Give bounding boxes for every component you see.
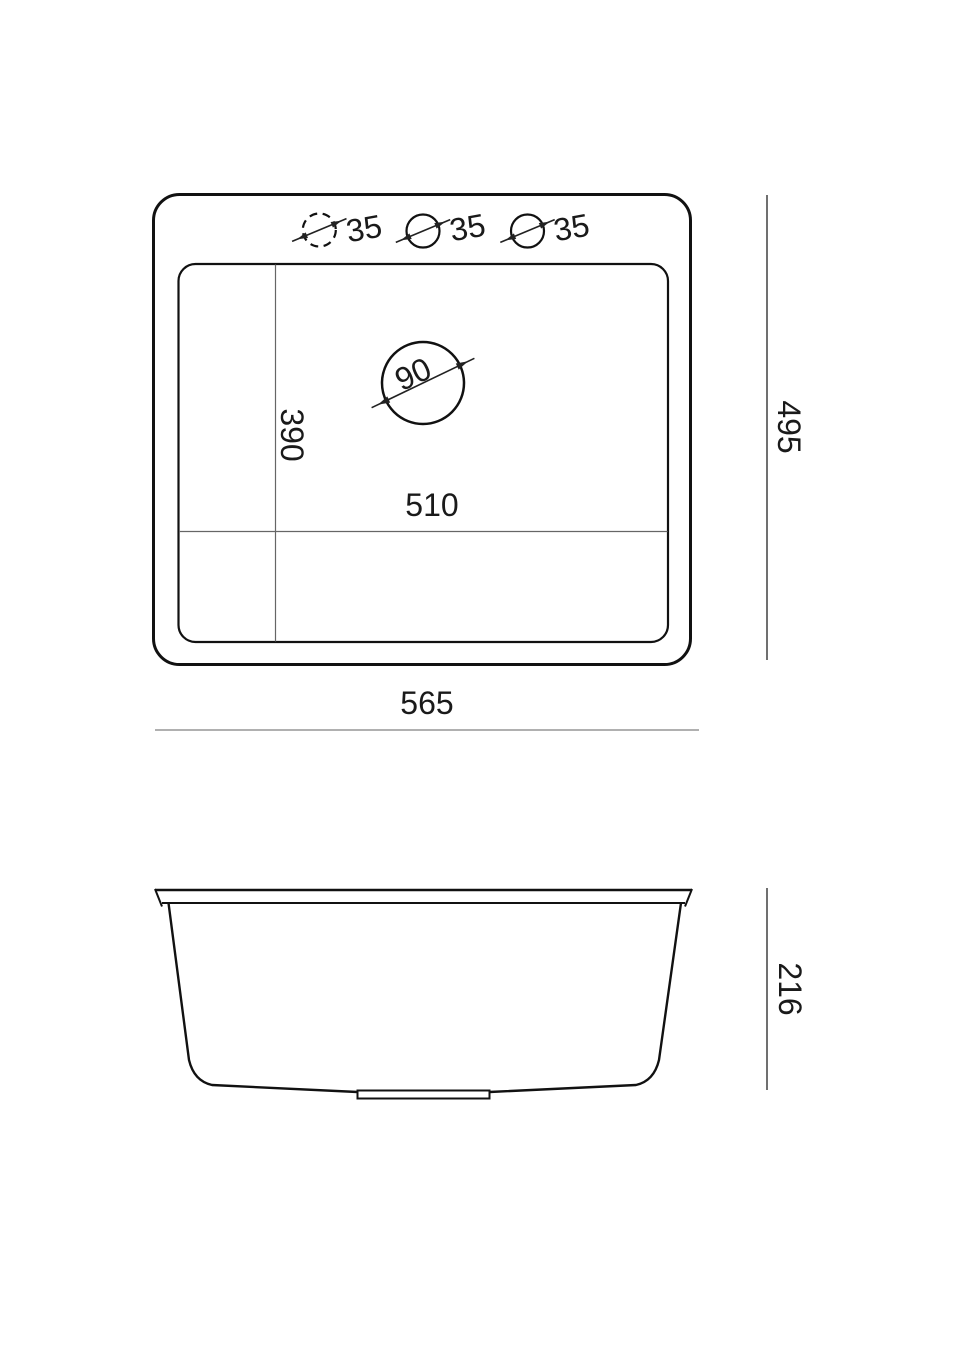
faucet-hole-3-label: 35 — [551, 207, 592, 249]
body-right-wall — [490, 903, 682, 1092]
bowl-depth-label: 390 — [274, 408, 310, 461]
faucet-hole-2-label-group: 35 — [447, 207, 488, 249]
side-view — [155, 889, 692, 1099]
overall-height-label: 216 — [772, 962, 808, 1015]
top-view: 35 35 35 90 390 510 — [154, 195, 691, 665]
bowl-width-label: 510 — [405, 487, 458, 523]
body-left-wall — [169, 903, 358, 1092]
faucet-hole-3-label-group: 35 — [551, 207, 592, 249]
rim-right-cap — [685, 889, 692, 907]
overall-height-label-group: 216 — [772, 962, 808, 1015]
bowl-inner-edge — [179, 264, 669, 642]
drain-fitting — [358, 1091, 490, 1099]
faucet-hole-2-label: 35 — [447, 207, 488, 249]
faucet-hole-1-label-group: 35 — [343, 208, 384, 250]
overall-depth-label: 495 — [771, 400, 807, 453]
rim-left-cap — [155, 889, 162, 907]
faucet-hole-1-label: 35 — [343, 208, 384, 250]
side-view-dimensions: 216 — [767, 888, 808, 1090]
overall-width-label: 565 — [400, 685, 453, 721]
bowl-depth-label-group: 390 — [274, 408, 310, 461]
sink-technical-drawing: 35 35 35 90 390 510 495 — [0, 0, 960, 1356]
overall-depth-label-group: 495 — [771, 400, 807, 453]
